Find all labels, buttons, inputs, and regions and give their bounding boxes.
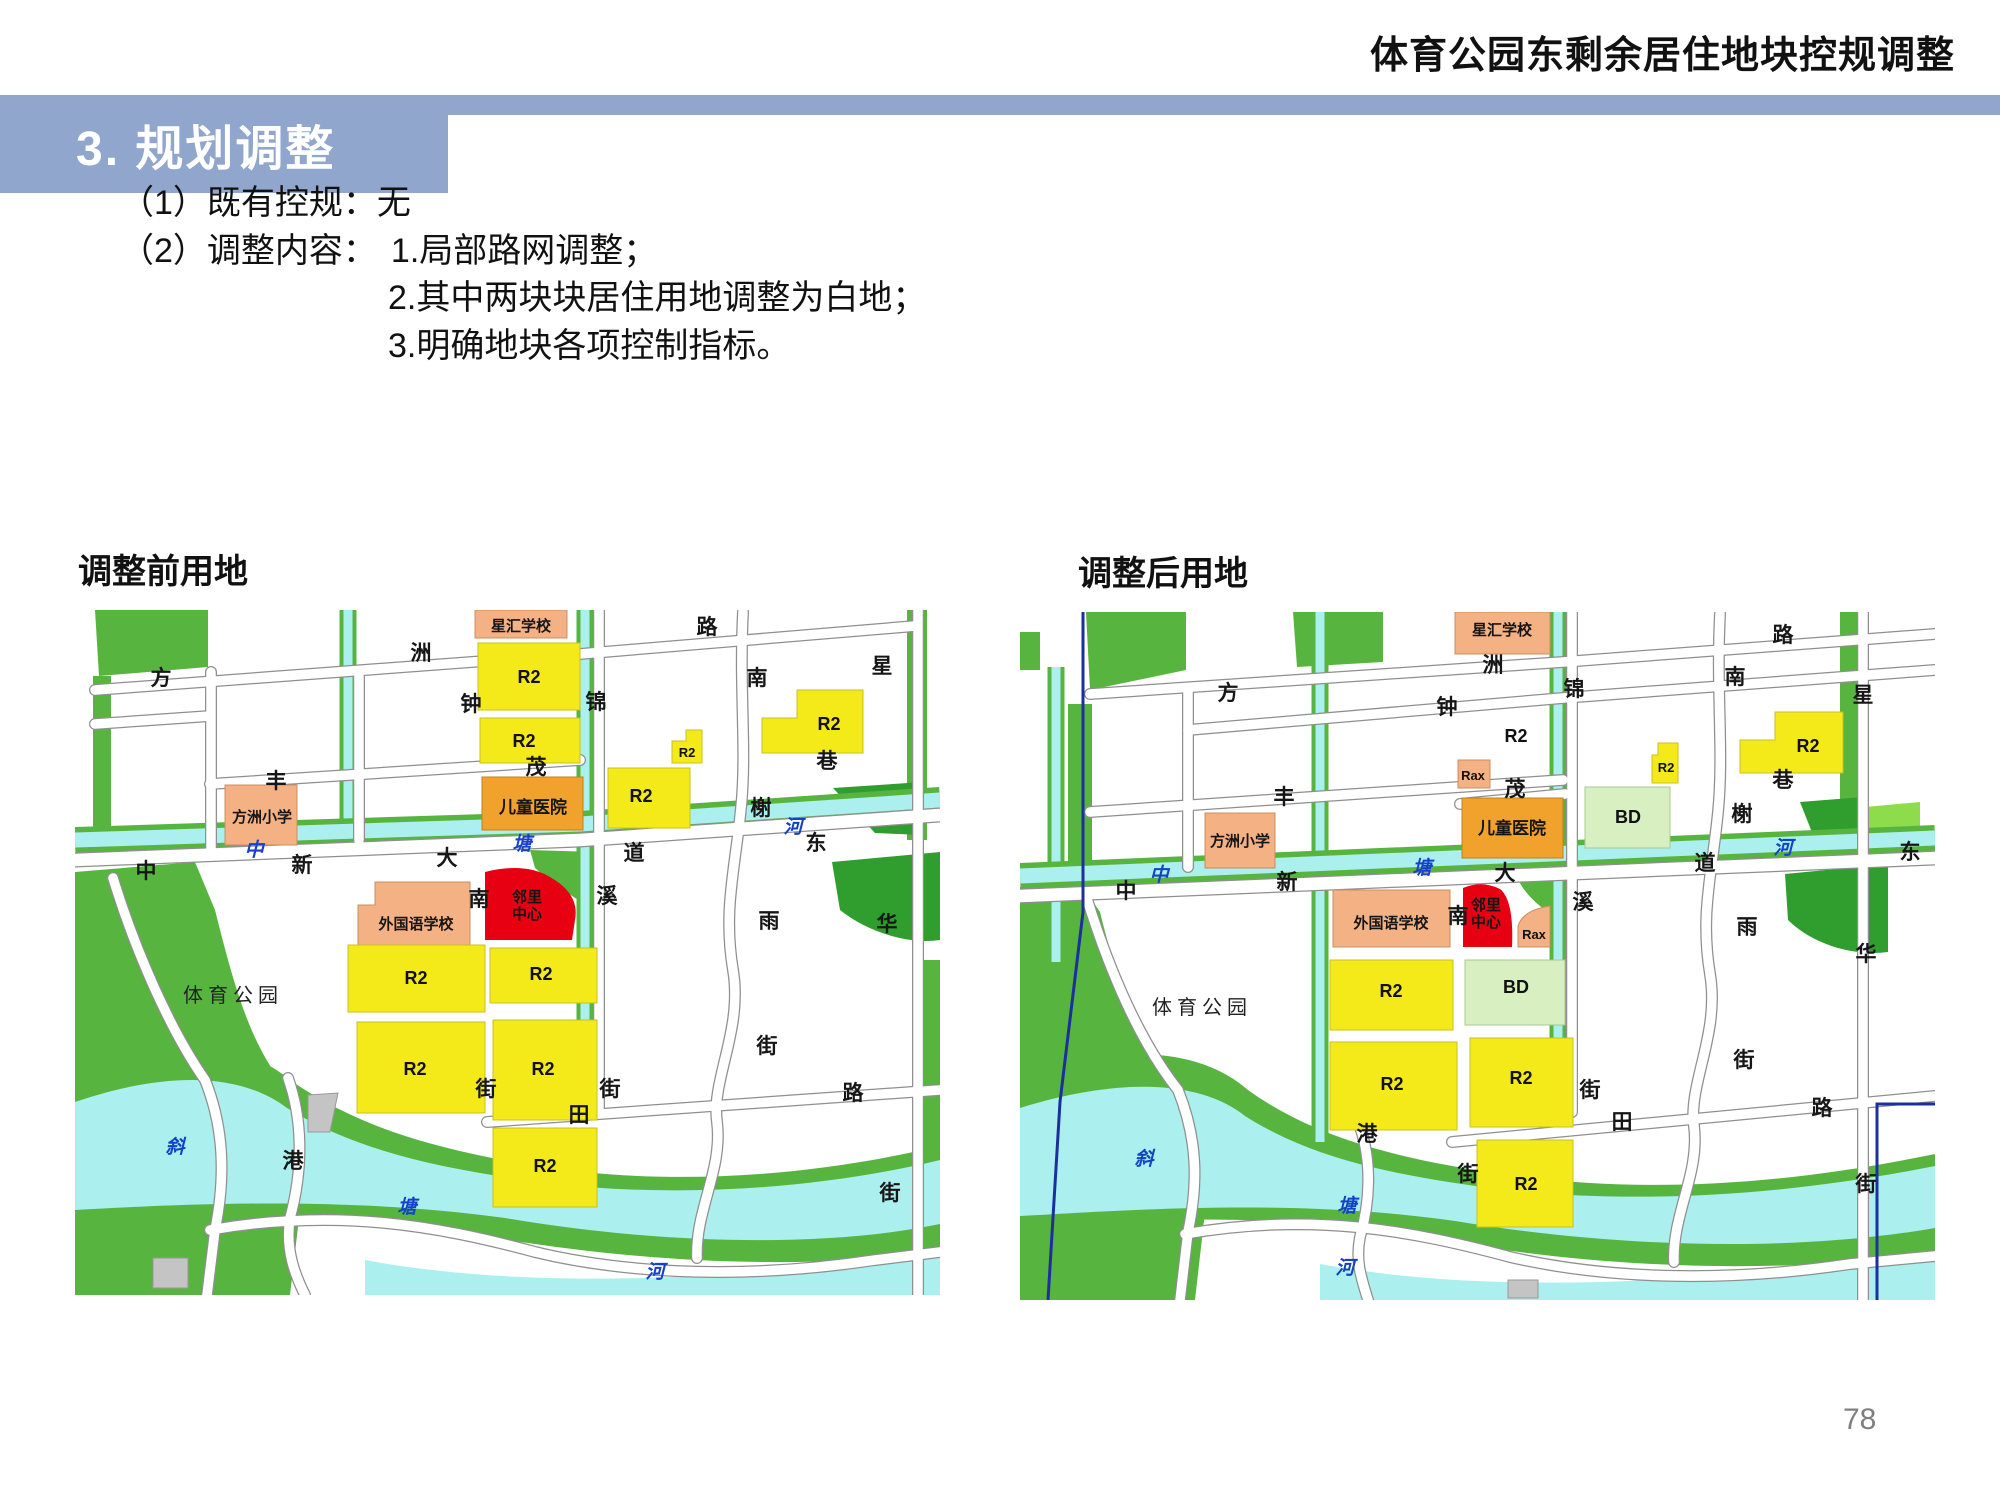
road-name-label: 田 (569, 1104, 590, 1127)
road-name-label: 钟 (461, 693, 482, 716)
body-text: （1）既有控规：无 （2）调整内容：1.局部路网调整； 2.其中两块块居住用地调… (120, 180, 926, 370)
zone-code-label: R2 (1504, 726, 1527, 746)
map-caption-before: 调整前用地 (78, 544, 248, 593)
road-name-label: 方 (151, 666, 172, 690)
facility-label: 外国语学校 (377, 915, 454, 933)
road-name-label: 中 (1116, 880, 1137, 903)
road-name-label: 道 (1695, 851, 1716, 875)
road-name-label: 街 (756, 1034, 778, 1058)
facility-label: 邻里 (1470, 896, 1501, 914)
zone-code-label: R2 (529, 964, 552, 984)
body-line-2-item: 1.局部路网调整； (391, 232, 657, 270)
road-name-label: 南 (1448, 904, 1469, 928)
road-name-label: 路 (697, 615, 719, 639)
zone-code-label: R2 (531, 1059, 554, 1079)
road-name-label: 大 (1495, 862, 1516, 885)
map-before: 方洲路南星钟锦丰茂巷中新大道东榭南溪雨华港街街田路街街中塘河斜塘河体育公园R2R… (75, 610, 940, 1295)
road-name-label: 新 (292, 853, 313, 877)
road-name-label: 港 (283, 1149, 305, 1173)
road-name-label: 华 (1856, 942, 1877, 966)
slide: 体育公园东剩余居住地块控规调整 3. 规划调整 （1）既有控规：无 （2）调整内… (0, 0, 2000, 1500)
zone-code-label: R2 (679, 745, 696, 760)
road-name-label: 路 (1773, 623, 1795, 647)
water-name-label: 中 (244, 839, 265, 861)
road-name-label: 钟 (1437, 696, 1458, 719)
section-banner: 3. 规划调整 (0, 95, 448, 193)
body-line-1: （1）既有控规：无 (120, 180, 926, 228)
road-name-label: 东 (1900, 840, 1921, 864)
body-line-3: 2.其中两块块居住用地调整为白地； (120, 275, 926, 323)
road-name-label: 南 (469, 887, 490, 911)
road-name-label: 巷 (816, 749, 839, 773)
road-name-label: 南 (747, 666, 768, 690)
road-name-label: 洲 (411, 642, 432, 665)
road-name-label: 星 (1853, 684, 1874, 707)
road-name-label: 锦 (1564, 678, 1585, 701)
area-label: 体育公园 (183, 984, 283, 1007)
zone-code-label: R2 (1379, 981, 1402, 1001)
road-name-label: 街 (599, 1077, 621, 1101)
road-name-label: 雨 (1737, 916, 1758, 939)
doc-title: 体育公园东剩余居住地块控规调整 (1370, 24, 1955, 79)
road-name-label: 街 (1457, 1162, 1479, 1186)
zone-code-label: Rax (1461, 768, 1486, 783)
zone-code-label: R2 (404, 968, 427, 988)
map-after: 方洲路南星钟锦丰茂巷中新大道东榭南溪雨华港街街田路街街中塘河斜塘河体育公园R2R… (1020, 612, 1935, 1300)
zone-code-label: R2 (533, 1156, 556, 1176)
road-name-label: 茂 (1505, 778, 1526, 801)
school-block (358, 882, 470, 945)
road-name-label: 田 (1612, 1111, 1633, 1134)
road-name-label: 街 (1855, 1172, 1877, 1196)
facility-label: 方洲小学 (232, 808, 292, 826)
road-name-label: 中 (136, 860, 157, 883)
road-name-label: 溪 (597, 885, 619, 908)
road-name-label: 东 (806, 831, 827, 855)
road-name-label: 街 (879, 1181, 901, 1205)
zone-code-label: R2 (629, 786, 652, 806)
road-name-label: 街 (475, 1077, 497, 1101)
facility-label: 儿童医院 (498, 797, 567, 817)
zone-code-label: R2 (817, 714, 840, 734)
road-name-label: 洲 (1483, 654, 1504, 677)
facility-label: 外国语学校 (1352, 914, 1429, 932)
road-name-label: 锦 (586, 691, 607, 714)
water-name-label: 斜 (165, 1136, 186, 1158)
facility-label: 儿童医院 (1477, 818, 1546, 838)
road-name-label: 榭 (1732, 802, 1753, 826)
zone-code-label: R2 (1514, 1174, 1537, 1194)
road-name-label: 路 (843, 1081, 865, 1105)
body-line-2: （2）调整内容：1.局部路网调整； (120, 228, 926, 276)
water-name-label: 中 (1149, 864, 1170, 886)
facility-label: 星汇学校 (1472, 621, 1533, 639)
area-label: 体育公园 (1152, 996, 1252, 1019)
road-name-label: 道 (624, 841, 645, 865)
zone-code-label: BD (1615, 807, 1641, 827)
zone-code-label: R2 (403, 1059, 426, 1079)
road-name-label: 茂 (526, 756, 547, 779)
zone-code-label: R2 (1509, 1068, 1532, 1088)
road-name-label: 新 (1277, 870, 1298, 894)
body-line-2-prefix: （2）调整内容： (120, 232, 377, 270)
section-title: 3. 规划调整 (0, 109, 335, 179)
zone-code-label: R2 (1380, 1074, 1403, 1094)
road-name-label: 大 (437, 847, 458, 870)
building (153, 1258, 188, 1288)
road-name-label: 雨 (759, 910, 780, 933)
building (1508, 1280, 1538, 1298)
facility-label: 邻里 (511, 888, 542, 906)
road-name-label: 巷 (1772, 768, 1795, 792)
facility-label: 中心 (512, 905, 542, 923)
road-name-label: 华 (877, 912, 898, 936)
zone-code-label: R2 (512, 731, 535, 751)
road-name-label: 街 (1733, 1048, 1755, 1072)
road-name-label: 丰 (266, 769, 287, 793)
road-name-label: 路 (1812, 1096, 1834, 1120)
road-name-label: 街 (1579, 1078, 1601, 1102)
zone-code-label: R2 (517, 667, 540, 687)
map-caption-after: 调整后用地 (1078, 546, 1248, 595)
zone-code-label: BD (1503, 977, 1529, 997)
body-line-4: 3.明确地块各项控制指标。 (120, 323, 926, 371)
road-name-label: 方 (1218, 681, 1239, 705)
facility-label: 星汇学校 (491, 617, 552, 635)
road-name-label: 丰 (1274, 785, 1295, 809)
zone-code-label: Rax (1522, 927, 1547, 942)
road-name-label: 港 (1357, 1122, 1379, 1146)
road-name-label: 溪 (1573, 891, 1595, 914)
facility-label: 方洲小学 (1210, 832, 1270, 850)
page-number: 78 (1843, 1403, 1876, 1437)
road-name-label: 星 (872, 655, 893, 678)
road-name-label: 南 (1725, 665, 1746, 689)
zone-code-label: R2 (1796, 736, 1819, 756)
zone-code-label: R2 (1658, 760, 1675, 775)
road-name-label: 榭 (751, 796, 772, 820)
facility-label: 中心 (1471, 913, 1501, 931)
water-name-label: 斜 (1134, 1148, 1155, 1170)
